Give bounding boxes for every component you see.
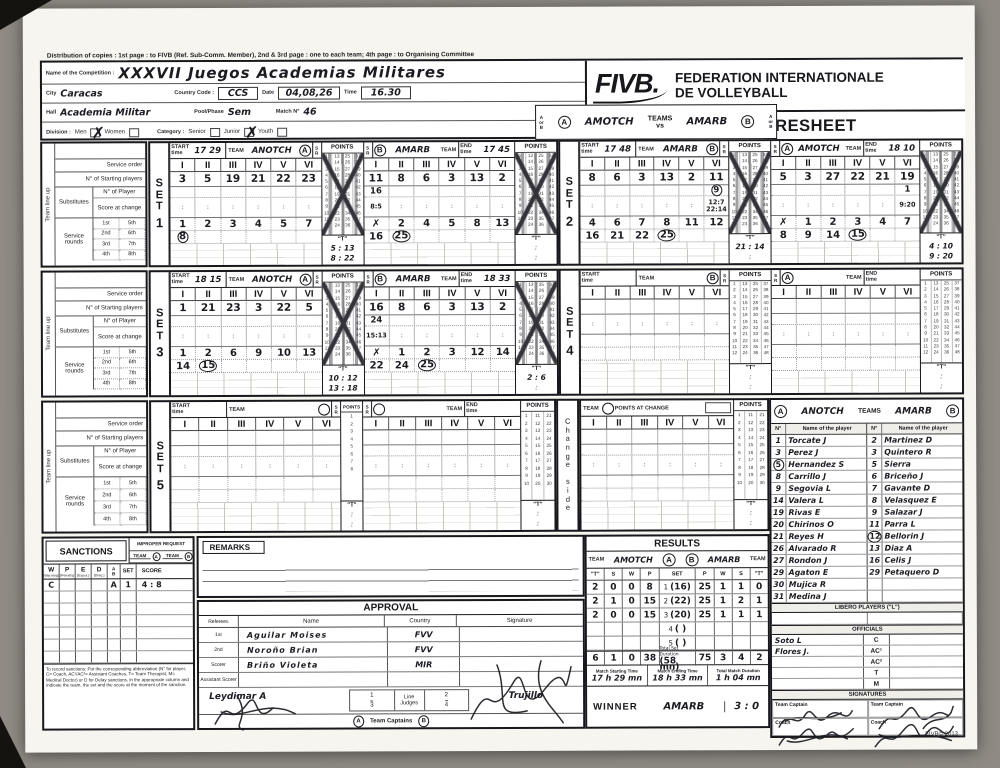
- lineup-labels-set5: Team line up Service order N° of Startin…: [41, 400, 148, 533]
- results-team-b: AMARB: [708, 555, 741, 564]
- starting-players-row: 3519212223: [170, 172, 321, 188]
- time-label: Time: [344, 89, 357, 95]
- set1-team-b-grid: SRBAMARBTEAMEND time17 45 IIIIIIIVVVI 11…: [363, 142, 557, 265]
- coach-a-signature-cell: Coach: [772, 718, 868, 736]
- team-b-name: AMARB: [686, 116, 727, 127]
- scanned-scoresheet: { "page":{ "distribution":"Distribution …: [0, 0, 1000, 768]
- set1-team-a-grid: START time17 29TEAMANOTCHASR IIIIIIIVVVI…: [169, 142, 363, 265]
- captain-b-signature-cell: Team Captain: [868, 699, 964, 717]
- youth-checkbox: [277, 127, 287, 136]
- team-b-letter: B: [741, 115, 754, 128]
- set-3-block: S E T3 START time18 15TEAMANOTCHASR IIII…: [149, 269, 559, 397]
- remarks-title: REMARKS: [203, 541, 265, 554]
- set-4-block: S E T4 START timeTEAMBSR IIIIIIIVVVI POI…: [559, 267, 964, 395]
- roster-row: 30Mujica R: [772, 578, 963, 591]
- team-a-letter: A: [774, 405, 787, 418]
- roster-row: 29Agaton E29Petaquero D: [772, 566, 963, 579]
- date-value: 04,08,26: [278, 86, 340, 99]
- fivb-logo: FIVB.: [593, 68, 667, 103]
- set5-left-grid: START timeTEAMSR IIIIIIIVVVI POINTS1 2 3…: [170, 401, 362, 531]
- roster-row: 19Rivas E9Salazar J: [771, 506, 962, 519]
- set3-team-a-grid: START time18 15TEAMANOTCHASR IIIIIIIVVVI…: [170, 271, 364, 395]
- set-3-label: S E T3: [151, 272, 170, 395]
- roster-row: 5Hernandez S5Sierra: [771, 458, 962, 471]
- points-at-change-label: POINTS AT CHANGE: [615, 400, 703, 415]
- service-rounds-row: 123457: [170, 218, 321, 232]
- starting-players-label: N° of Starting players: [55, 172, 145, 187]
- category-label: Category :: [157, 129, 184, 135]
- youth-label: Youth: [258, 129, 273, 135]
- improper-request-box: IMPROPER REQUEST TEAMATEAMB: [129, 538, 193, 563]
- junior-label: Junior: [224, 129, 240, 135]
- remarks-lines: [203, 561, 579, 592]
- referee-1-row: 1stAguilar MoisesFVV: [199, 627, 583, 643]
- roster-row: 3Perez J3Quintero R: [771, 446, 962, 459]
- distribution-note: Distribution of copies : 1st page : to F…: [47, 51, 474, 59]
- results-column-headers: "T"SWPSETPWS"T": [587, 568, 768, 581]
- results-team-a: AMOTCH: [614, 555, 653, 564]
- assistant-scorer-name: Leydimar A: [209, 692, 266, 702]
- set1-b-end-time: 17 45: [480, 144, 513, 154]
- city-value: Caracas: [60, 88, 170, 99]
- team-captains-line: ATeam CaptainsB: [199, 713, 583, 728]
- points-column: POINTS1 2 3 4 5 6 7 8 9 10 11 1213 14 15…: [920, 269, 962, 392]
- winner-team: AMARB: [644, 701, 725, 712]
- teams-label: TEAMSvs: [648, 115, 673, 129]
- results-set-row: 200153(20)25111: [587, 608, 768, 623]
- score-at-change-row: [170, 198, 321, 219]
- set5-right-grid: SRTEAMEND time IIIIIIIVVVI POINTS1 2 3 4…: [362, 401, 554, 531]
- lineup-labels-set3: Team line up Service order N° of Startin…: [41, 270, 148, 397]
- roster-row: 1Torcate J2Martinez D: [771, 434, 962, 447]
- match-duration: 1 h 04 mn: [716, 673, 761, 682]
- set-4-label: S E T4: [561, 271, 580, 394]
- points-column: POINTS1 2 3 4 5 6 7 8 9 10 11 1213 14 15…: [514, 142, 556, 264]
- teams-box: AorB A AMOTCH TEAMSvs AMARB B AorB: [535, 104, 777, 140]
- line-judges-area: Leydimar A 13Line Judges24 Trujillo ATea…: [199, 687, 583, 728]
- set3-team-b-grid: SRBAMARBTEAMEND time18 33 IIIIIIIVVVI 16…: [363, 271, 557, 395]
- a-or-b-stack: AorB: [769, 114, 774, 129]
- scoresheet-paper: Distribution of copies : 1st page : to F…: [23, 5, 978, 752]
- match-times-row: Match Starting Time17 h 29 mn Match Endi…: [587, 665, 768, 687]
- city-label: City: [46, 91, 56, 97]
- results-set-row: 4( ): [587, 622, 768, 637]
- assistant-scorer-row: Assistant Scorer: [199, 672, 583, 688]
- official-row: Flores J.AC¹: [772, 645, 963, 657]
- senior-checkbox: [210, 127, 220, 136]
- set2-team-a-grid: SRAAMOTCHTEAMEND time18 10 IIIIIIIVVVI 5…: [770, 140, 961, 263]
- service-rounds-row: 8: [170, 231, 321, 245]
- fivb-copyright: FIVB© 2013: [925, 731, 958, 737]
- official-row: AC²: [772, 656, 963, 668]
- sanctions-block: SANCTIONS IMPROPER REQUEST TEAMATEAMB W(…: [42, 536, 196, 731]
- points-column: POINTS1 2 3 4 5 6 7 8 9 10 11 1213 14 15…: [321, 271, 363, 394]
- substitutes-label: Substitutes: [55, 187, 93, 217]
- division-label: Division :: [46, 129, 71, 135]
- team-a-letter: A: [558, 116, 571, 129]
- roster-row: 31Medina J: [772, 590, 963, 603]
- sanction-row: CA14 : 8: [44, 579, 193, 592]
- set4-team-a-grid: SRATEAMEND time IIIIIIIVVVI POINTS1 2 3 …: [771, 269, 962, 393]
- results-set-row: 20081(16)25110: [587, 580, 768, 595]
- officials-title: OFFICIALS: [772, 624, 963, 635]
- roster-row: 26Alvarado R13Diaz A: [772, 542, 963, 555]
- phase-value: Sem: [228, 106, 272, 117]
- federation-name: FEDERATION INTERNATIONALEDE VOLLEYBALL: [675, 70, 884, 101]
- service-order-row: IIIIIIIVVVI: [170, 159, 321, 173]
- approval-block: APPROVAL RefereesNameCountrySignature 1s…: [197, 599, 585, 730]
- women-checkbox: [129, 128, 139, 137]
- captain-a-signature-cell: Team Captain: [772, 700, 868, 718]
- lineup-labels-set1: Team line up Service order N° of Startin…: [40, 141, 147, 267]
- roster-row: 9Segovia L7Gavante D: [771, 482, 962, 495]
- set-2-label: S E T2: [560, 142, 579, 264]
- libero-players-title: LIBERO PLAYERS ("L"): [772, 602, 963, 613]
- change-side-strip: C h a n g e s i d e: [556, 399, 579, 532]
- set-1-block: S E T1 START time17 29TEAMANOTCHASR IIII…: [148, 140, 558, 267]
- date-label: Date: [262, 90, 274, 96]
- set-1-label: S E T1: [150, 143, 169, 265]
- libero-players-row: [772, 612, 963, 625]
- scan-artifact-corner: [0, 716, 26, 768]
- signatures-title: SIGNATURES: [772, 689, 963, 700]
- match-number: 46: [303, 106, 329, 117]
- official-row: T: [772, 667, 963, 679]
- set2-team-b-grid: START time17 48TEAMAMARBBSR IIIIIIIVVVI …: [579, 141, 770, 264]
- country-code-label: Country Code :: [174, 90, 214, 96]
- points-column: POINTS1 2 3 4 5 6 7 8 9 1011 12 13 14 15…: [733, 400, 767, 529]
- competition-label: Name of the Competition :: [46, 70, 114, 76]
- sanctions-column-headers: W(Warning) P(Penalty) E(Expul.) D(Disq.)…: [44, 564, 193, 580]
- service-order-label: Service order: [55, 159, 145, 172]
- roster-column-headers: N°Name of the playerN°Name of the player: [771, 423, 962, 435]
- set-2-block: S E T2 START time17 48TEAMAMARBBSR IIIII…: [558, 138, 963, 265]
- set5-points-at-change-block: TEAMPOINTS AT CHANGE IIIIIIIVVVI POINTS1…: [579, 398, 769, 532]
- hall-label: Hall: [46, 110, 56, 116]
- substitutes-row: [170, 187, 321, 199]
- country-code-value: CCS: [218, 86, 258, 99]
- phase-label: Pool/Phase: [194, 109, 224, 115]
- team-a-name: AMOTCH: [585, 117, 634, 128]
- points-column: POINTS1 2 3 4 5 6 7 8 9 10 11 1213 14 15…: [321, 142, 363, 264]
- points-column: POINTS1 2 3 4 5 6 7 8 9 10 11 1213 14 15…: [515, 271, 557, 394]
- team-line-up-label: Team line up: [45, 188, 51, 222]
- approval-title: APPROVAL: [199, 601, 583, 616]
- set4-team-b-grid: START timeTEAMBSR IIIIIIIVVVI POINTS1 2 …: [580, 270, 771, 394]
- header-block: Name of the Competition :XXXVII Juegos A…: [40, 57, 963, 140]
- roster-row: 27Rondon J16Celis J: [772, 554, 963, 567]
- remarks-block: REMARKS: [197, 535, 585, 598]
- winner-label: WINNER: [587, 701, 644, 712]
- team-roster-block: A ANOTCH TEAMS AMARB B N°Name of the pla…: [769, 397, 965, 738]
- senior-label: Senior: [188, 129, 205, 135]
- set1-a-start-time: 17 29: [191, 145, 224, 155]
- roster-header: A ANOTCH TEAMS AMARB B: [771, 399, 962, 424]
- set1-b-team-name: AMARB: [387, 142, 439, 157]
- referee-2-row: 2ndNoroño BrianFVV: [199, 642, 583, 658]
- roster-row: 20Chirinos O11Parra L: [771, 518, 962, 531]
- winner-score: 3 : 0: [724, 701, 768, 712]
- roster-team-a-name: ANOTCH: [801, 406, 843, 416]
- men-label: Men: [75, 129, 87, 135]
- sanctions-title: SANCTIONS: [46, 540, 127, 561]
- roster-row: 21Reyes H12Bellorin J: [772, 530, 963, 543]
- men-checkbox: ✗: [91, 128, 101, 137]
- team-b-letter: B: [946, 404, 959, 417]
- points-column: POINTS1 2 3 4 5 6 7 8 9 10 11 1213 14 15…: [728, 141, 770, 263]
- hall-value: Academia Militar: [60, 107, 190, 118]
- results-total-row: 61038Total Set Duration(58 mn)75342: [587, 650, 768, 666]
- set-5-label: S E T5: [151, 402, 170, 531]
- official-row: M: [772, 678, 963, 690]
- results-set-row: 210152(22)25121: [587, 594, 768, 609]
- set1-a-team-name: ANOTCH: [246, 143, 298, 158]
- official-row: Soto LC: [772, 634, 963, 646]
- results-title: RESULTS: [587, 536, 768, 552]
- roster-row: 8Carrillo J6Briceño J: [771, 470, 962, 483]
- match-label: Match N°: [276, 109, 300, 115]
- winner-row: WINNERAMARB3 : 0: [587, 686, 768, 727]
- points-column: POINTS1 2 3 4 5 6 7 8 9 10 11 1213 14 15…: [919, 140, 961, 262]
- teams-label: TEAMS: [858, 408, 881, 415]
- women-label: Women: [105, 129, 126, 135]
- match-end-time: 18 h 33 mn: [652, 673, 702, 682]
- roster-team-b-name: AMARB: [895, 406, 932, 416]
- results-team-row: TEAMAMOTCHABAMARBTEAM: [587, 551, 768, 569]
- timeout-score: 5 : 13: [331, 244, 355, 254]
- roster-row: 14Valera L8Velasquez E: [771, 494, 962, 507]
- line-judge-name: Trujillo: [509, 691, 544, 701]
- results-block: RESULTS TEAMAMOTCHABAMARBTEAM "T"SWPSETP…: [585, 534, 771, 729]
- points-column: POINTS1 2 3 4 5 6 7 8 9 1011 12 13 14 15…: [520, 401, 554, 530]
- scorer-row: ScorerBriño VioletaMIR: [199, 657, 583, 673]
- competition-name: XXXVII Juegos Academias Militares: [118, 62, 581, 82]
- a-or-b-stack: AorB: [539, 115, 544, 130]
- sanctions-footnote: To record sanctions: Put the correspondi…: [44, 663, 193, 729]
- set-5-block: S E T5 START timeTEAMSR IIIIIIIVVVI POIN…: [149, 399, 556, 533]
- time-value: 16.30: [361, 86, 411, 99]
- match-start-time: 17 h 29 mn: [592, 674, 642, 683]
- points-column: POINTS1 2 3 4 5 6 7 8 9 10 11 1213 14 15…: [729, 270, 771, 393]
- points-column: POINTS1 2 3 4 5 6 7 8"T": [340, 401, 362, 530]
- service-rounds-label: Service rounds: [55, 218, 93, 260]
- junior-checkbox: ✗: [244, 127, 254, 136]
